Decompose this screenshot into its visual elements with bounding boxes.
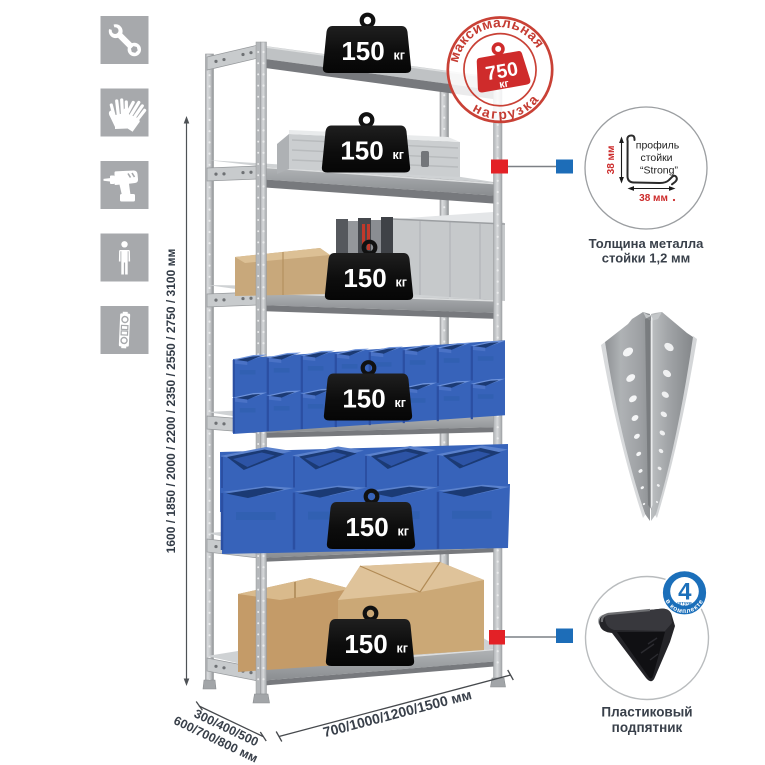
svg-text:стойки: стойки <box>640 152 672 164</box>
svg-text:“Strong”: “Strong” <box>640 165 678 177</box>
svg-text:кг: кг <box>396 276 407 290</box>
svg-text:кг: кг <box>393 148 404 162</box>
svg-text:Пластиковый: Пластиковый <box>601 705 692 720</box>
svg-text:кг: кг <box>395 396 406 410</box>
svg-text:150: 150 <box>342 384 385 414</box>
svg-text:38 мм: 38 мм <box>606 146 617 175</box>
svg-text:Толщина металла: Толщина металла <box>589 236 704 251</box>
svg-text:150: 150 <box>344 629 387 659</box>
svg-text:38 мм: 38 мм <box>639 193 668 204</box>
svg-text:подпятник: подпятник <box>612 720 683 735</box>
svg-text:150: 150 <box>343 263 386 293</box>
svg-text:кг: кг <box>397 642 408 656</box>
svg-text:кг: кг <box>398 525 409 539</box>
svg-text:штуки: штуки <box>677 601 692 606</box>
svg-text:профиль: профиль <box>636 140 680 152</box>
svg-text:кг: кг <box>394 49 405 63</box>
svg-text:150: 150 <box>340 136 383 166</box>
svg-text:150: 150 <box>345 512 388 542</box>
svg-text:150: 150 <box>341 36 384 66</box>
svg-text:1600 / 1850 / 2000 / 2200 / 23: 1600 / 1850 / 2000 / 2200 / 2350 / 2550 … <box>164 249 178 554</box>
svg-text:стойки 1,2 мм: стойки 1,2 мм <box>602 251 690 266</box>
